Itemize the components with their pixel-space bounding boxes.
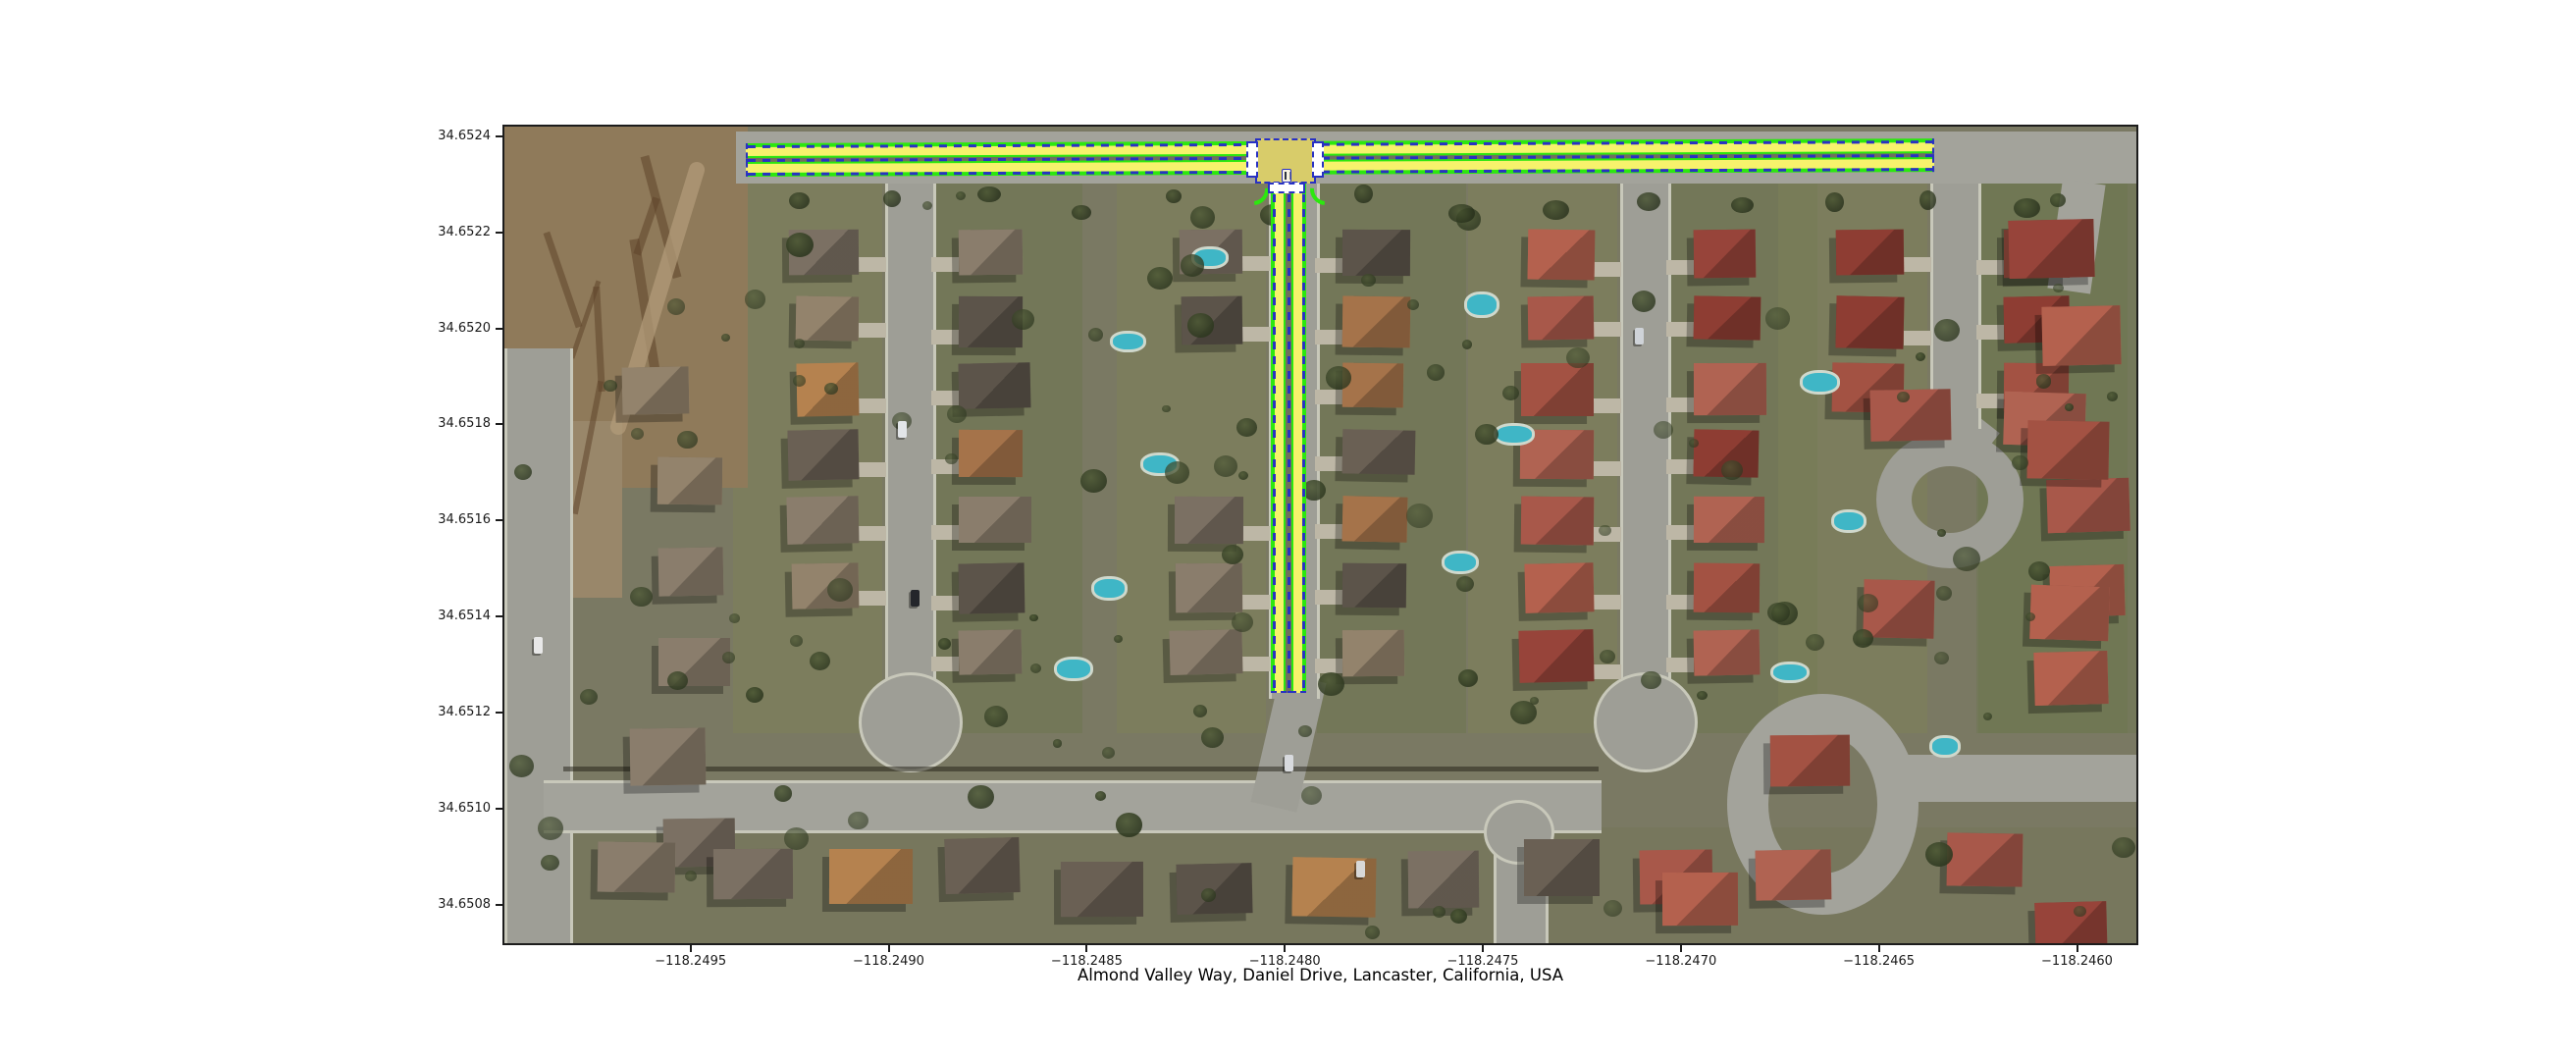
y-tick-label: 34.6522 [412, 225, 491, 240]
junction-regulatory-icon [1282, 169, 1292, 183]
y-tick-mark [496, 232, 502, 234]
x-tick-mark [1482, 945, 1484, 952]
figure-title: Almond Valley Way, Daniel Drive, Lancast… [504, 966, 2136, 984]
y-tick-mark [496, 135, 502, 137]
y-tick-label: 34.6520 [412, 321, 491, 337]
stop-bar-marking [1312, 141, 1324, 178]
y-tick-label: 34.6516 [412, 512, 491, 528]
road-lanes-daniel-drive [1271, 180, 1306, 694]
figure-canvas: −118.2495−118.2490−118.2485−118.2480−118… [0, 0, 2576, 1060]
y-tick-label: 34.6512 [412, 705, 491, 720]
y-tick-label: 34.6518 [412, 416, 491, 432]
y-tick-mark [496, 328, 502, 330]
stop-bar-marking [1246, 141, 1258, 178]
x-tick-mark [2077, 945, 2078, 952]
x-tick-mark [888, 945, 890, 952]
y-tick-mark [496, 712, 502, 714]
y-tick-mark [496, 519, 502, 521]
y-tick-mark [496, 615, 502, 617]
x-tick-mark [1680, 945, 1682, 952]
x-tick-mark [690, 945, 692, 952]
lane-overlay [504, 127, 2136, 943]
y-tick-label: 34.6508 [412, 897, 491, 913]
y-tick-label: 34.6514 [412, 609, 491, 624]
x-tick-mark [1085, 945, 1087, 952]
stop-bar-marking [1268, 183, 1305, 193]
y-tick-mark [496, 808, 502, 810]
y-tick-mark [496, 423, 502, 425]
x-tick-mark [1284, 945, 1286, 952]
x-tick-mark [1878, 945, 1880, 952]
road-lanes-almond-valley-way [746, 138, 1934, 177]
y-tick-mark [496, 904, 502, 906]
y-tick-label: 34.6510 [412, 801, 491, 817]
y-tick-label: 34.6524 [412, 129, 491, 144]
map-plot-area [504, 127, 2136, 943]
